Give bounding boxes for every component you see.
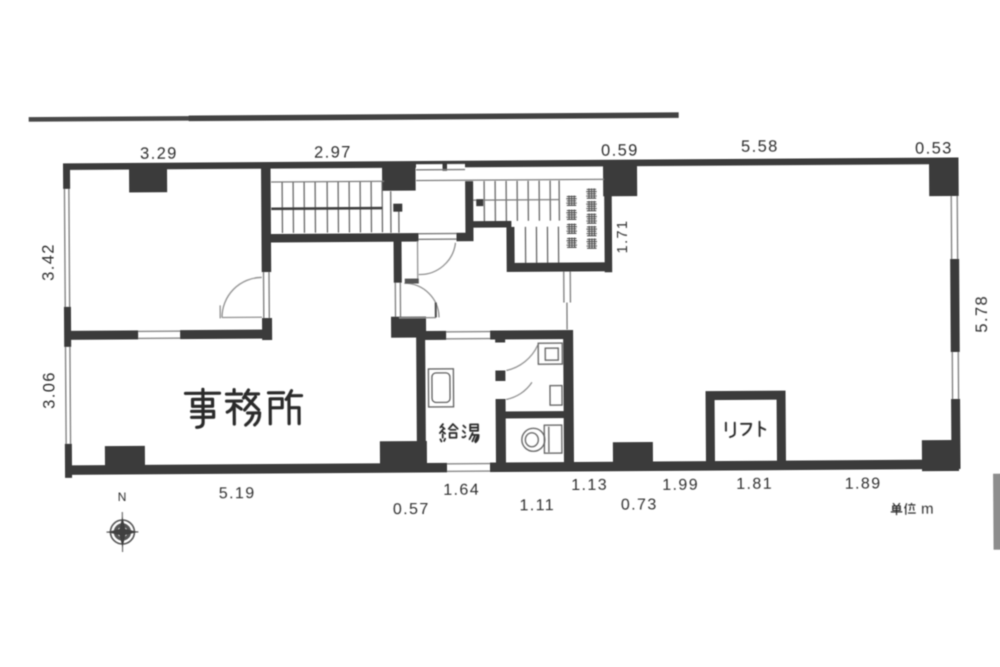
svg-text:3.06: 3.06	[40, 371, 58, 409]
svg-text:3.42: 3.42	[40, 243, 58, 281]
svg-text:0.53: 0.53	[915, 139, 953, 157]
svg-text:1.71: 1.71	[615, 220, 631, 254]
svg-text:5.19: 5.19	[219, 485, 256, 502]
svg-text:1.81: 1.81	[736, 476, 773, 493]
svg-text:N: N	[118, 490, 128, 504]
svg-text:5.78: 5.78	[973, 295, 991, 333]
svg-text:2.97: 2.97	[314, 143, 352, 161]
svg-text:1.13: 1.13	[571, 477, 608, 494]
svg-text:1.89: 1.89	[845, 475, 882, 492]
svg-text:3.29: 3.29	[140, 145, 178, 163]
svg-text:1.64: 1.64	[443, 482, 480, 499]
svg-text:1.11: 1.11	[519, 497, 555, 514]
svg-text:0.57: 0.57	[393, 501, 430, 518]
svg-text:5.58: 5.58	[741, 138, 779, 156]
svg-text:0.59: 0.59	[601, 142, 639, 160]
svg-text:0.73: 0.73	[621, 496, 658, 513]
svg-text:m: m	[921, 501, 934, 518]
svg-text:1.99: 1.99	[662, 477, 699, 494]
